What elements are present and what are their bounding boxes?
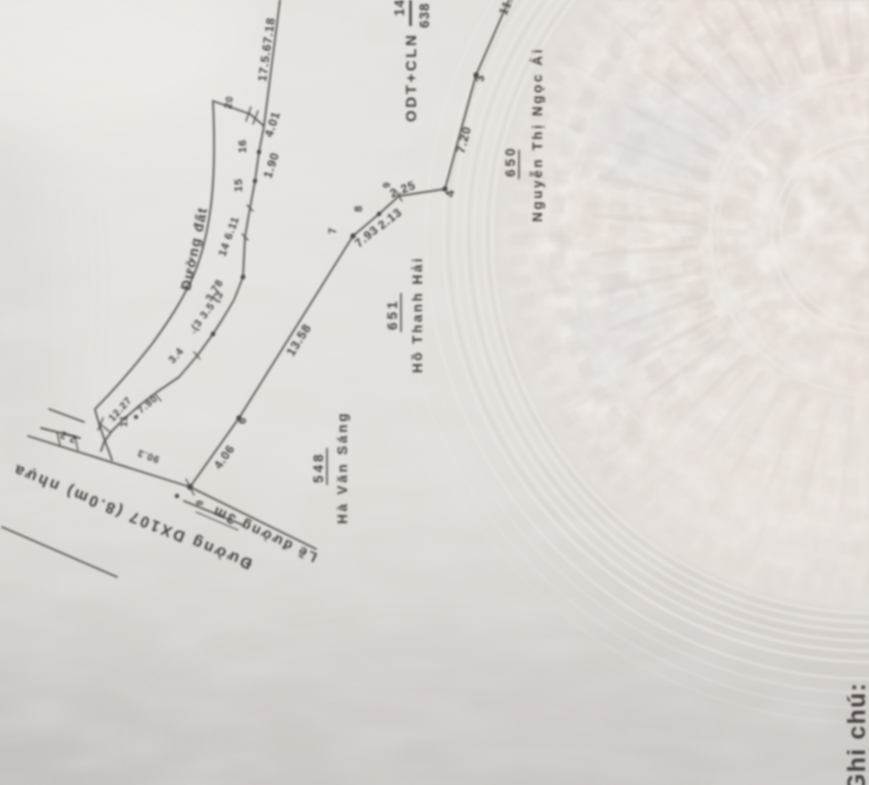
svg-text:650: 650: [503, 145, 518, 177]
svg-text:11: 11: [119, 415, 130, 427]
svg-text:7: 7: [327, 227, 339, 234]
svg-text:8: 8: [353, 205, 365, 212]
svg-text:4: 4: [443, 190, 457, 197]
svg-text:9: 9: [195, 500, 206, 506]
svg-text:16: 16: [237, 139, 249, 153]
svg-text:Hà Văn Sáng: Hà Văn Sáng: [335, 411, 350, 524]
svg-text:548: 548: [311, 451, 326, 483]
svg-text:20: 20: [223, 95, 236, 109]
svg-text:15: 15: [233, 178, 245, 192]
svg-text:Ghi chú:: Ghi chú:: [843, 682, 869, 785]
svg-text:651: 651: [385, 298, 400, 330]
svg-text:Nguyễn Thị Ngọc Ái: Nguyễn Thị Ngọc Ái: [530, 47, 545, 222]
svg-text:3: 3: [473, 75, 487, 82]
svg-text:ODT+CLN: ODT+CLN: [403, 33, 420, 122]
svg-text:6: 6: [237, 417, 249, 424]
svg-text:638: 638: [417, 2, 432, 28]
svg-text:14: 14: [392, 0, 407, 16]
svg-text:Hồ Thanh Hải: Hồ Thanh Hải: [410, 256, 425, 373]
